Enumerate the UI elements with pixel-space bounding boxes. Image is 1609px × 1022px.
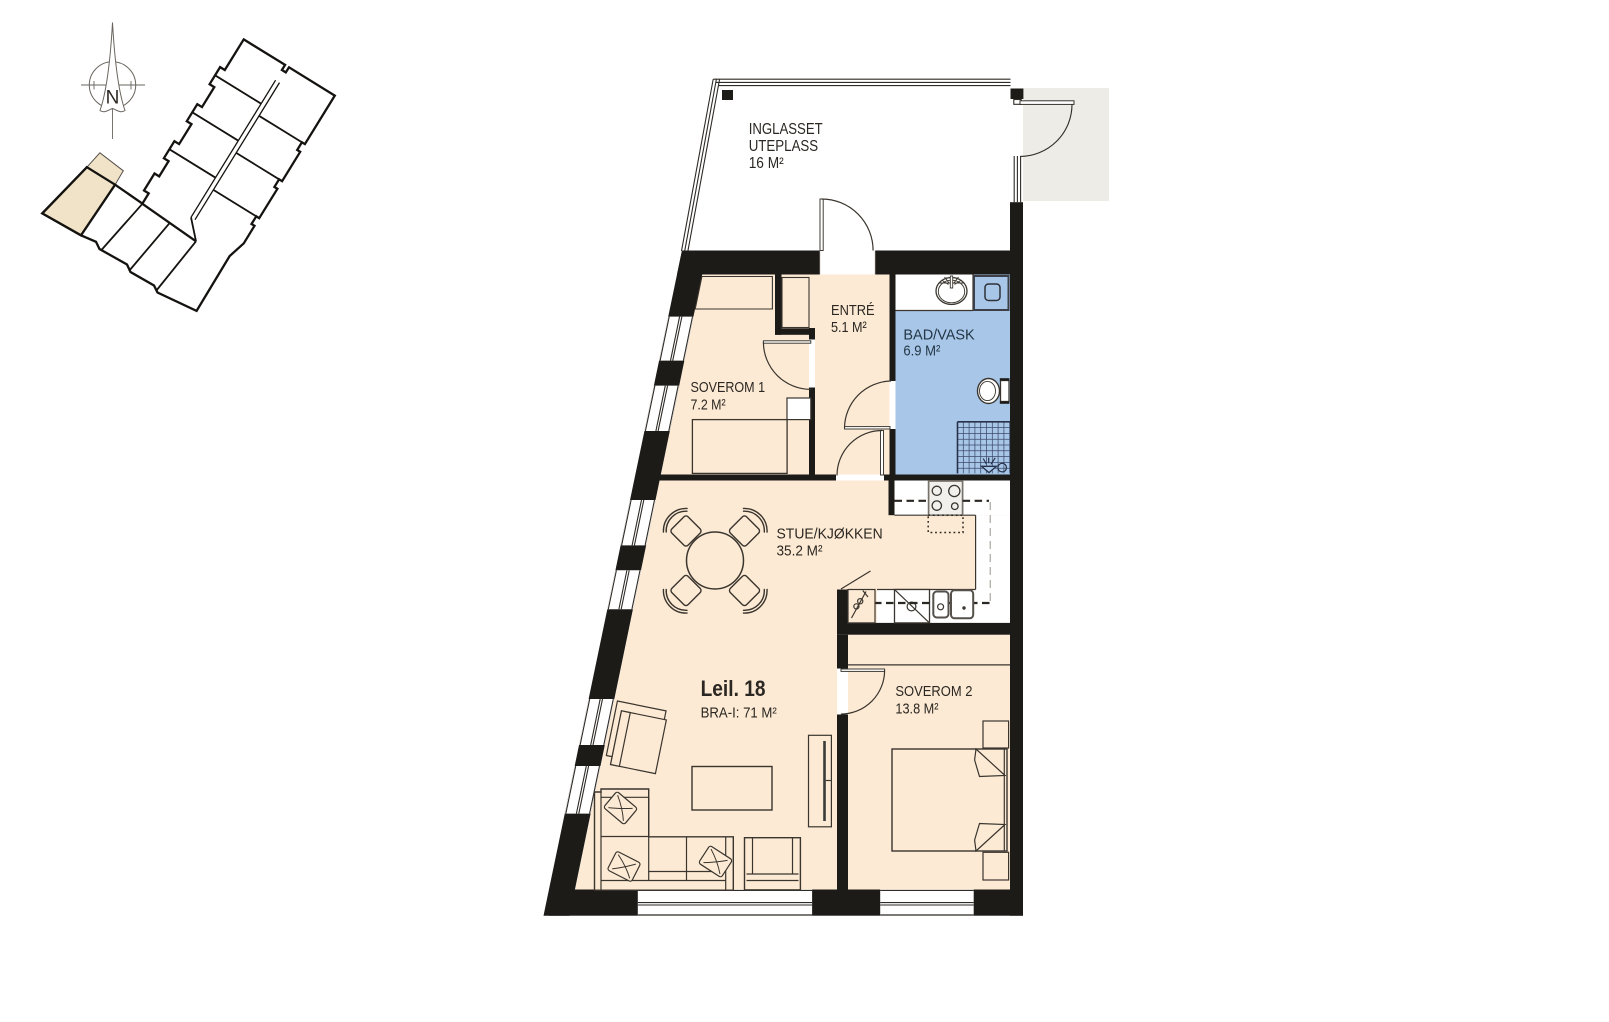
svg-text:UTEPLASS: UTEPLASS (749, 138, 819, 155)
svg-text:SOVEROM 1: SOVEROM 1 (691, 379, 766, 396)
svg-text:Leil. 18: Leil. 18 (701, 676, 766, 701)
svg-text:6.9 M²: 6.9 M² (903, 342, 940, 359)
svg-text:35.2 M²: 35.2 M² (777, 543, 823, 560)
svg-text:7.2 M²: 7.2 M² (691, 396, 726, 413)
svg-text:BRA-I: 71 M²: BRA-I: 71 M² (701, 705, 777, 721)
svg-text:BAD/VASK: BAD/VASK (903, 326, 974, 343)
svg-text:SOVEROM 2: SOVEROM 2 (895, 683, 972, 700)
svg-text:16 M²: 16 M² (749, 155, 784, 172)
svg-text:13.8 M²: 13.8 M² (895, 700, 938, 717)
svg-text:INGLASSET: INGLASSET (749, 121, 823, 138)
svg-text:ENTRÉ: ENTRÉ (831, 302, 875, 319)
svg-text:N: N (106, 88, 120, 109)
svg-text:STUE/KJØKKEN: STUE/KJØKKEN (777, 526, 883, 543)
svg-text:5.1 M²: 5.1 M² (831, 319, 867, 336)
